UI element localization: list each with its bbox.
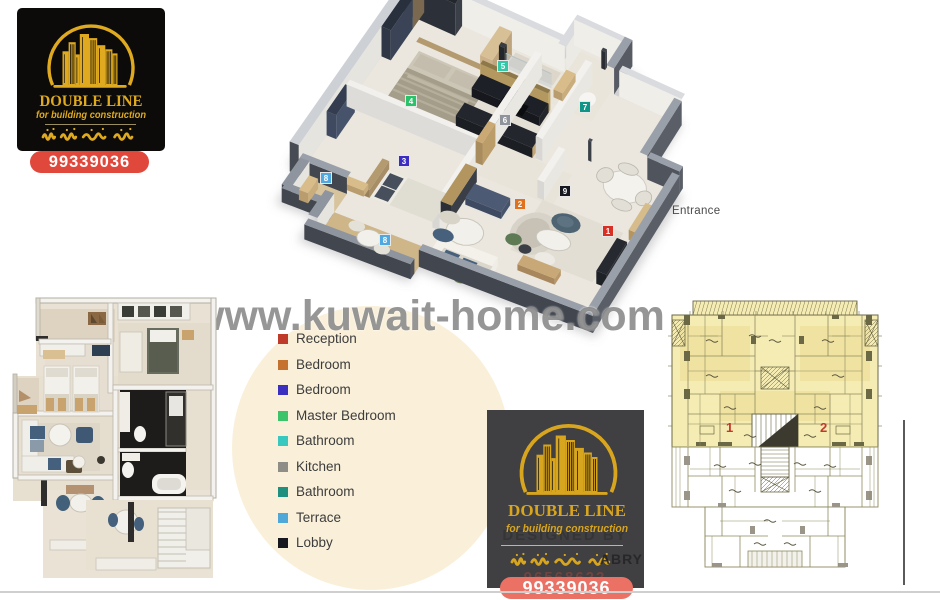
svg-text:for building construction: for building construction: [36, 110, 146, 121]
svg-text:8: 8: [324, 174, 329, 183]
svg-text:DOUBLE LINE: DOUBLE LINE: [508, 501, 626, 520]
svg-text:1: 1: [606, 227, 611, 236]
svg-text:1: 1: [726, 420, 733, 435]
svg-text:ABRY: ABRY: [600, 551, 643, 567]
svg-text:8: 8: [383, 236, 388, 245]
svg-text:2: 2: [820, 420, 827, 435]
svg-text:5: 5: [501, 62, 506, 71]
svg-text:2: 2: [518, 200, 523, 209]
svg-text:DOUBLE LINE: DOUBLE LINE: [40, 93, 143, 110]
svg-text:9: 9: [563, 187, 568, 196]
svg-text:3: 3: [402, 157, 407, 166]
svg-text:6: 6: [503, 116, 508, 125]
svg-text:7: 7: [583, 103, 588, 112]
svg-text:4: 4: [409, 97, 414, 106]
svg-text:for building construction: for building construction: [506, 523, 628, 535]
